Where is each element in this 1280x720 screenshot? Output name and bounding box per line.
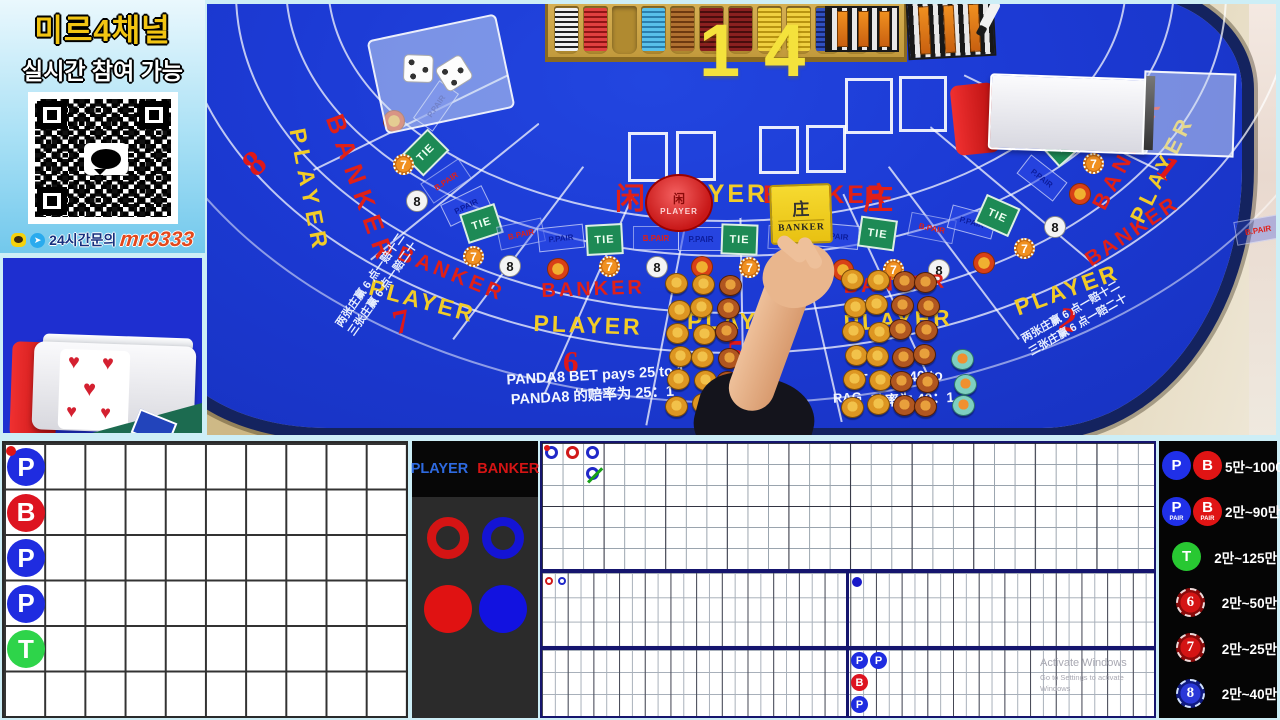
bet-box-tie: TIE: [857, 216, 898, 252]
legend-symbols: [412, 497, 538, 633]
limit-icon-p: P: [1162, 451, 1191, 480]
chip: [951, 349, 974, 370]
lucky-chip-icon: [973, 252, 995, 274]
chip: [843, 369, 866, 390]
watermark-line1: Activate Windows: [1040, 655, 1154, 672]
limit-range: 2만~90만: [1225, 501, 1280, 521]
bead-B: B: [7, 494, 45, 532]
chip: [842, 321, 865, 342]
limit-icons: 6: [1162, 588, 1219, 617]
contact-label: 24시간문의: [49, 230, 116, 250]
eight-chip-icon: 8: [499, 255, 521, 277]
card-spot: [806, 125, 846, 173]
chip-stack: [555, 8, 578, 51]
chip: [717, 298, 740, 319]
limit-range: 2만~50만: [1222, 592, 1277, 612]
table-video: P.PAIRTIEB.PAIRP.PAIRTIEB.PAIRP.PAIRTIEB…: [207, 4, 1276, 435]
bead-plate-grid: PBPPT: [4, 443, 406, 716]
derived-road-upper: [542, 573, 1154, 646]
roads-panel: PPBP Activate Windows Go to Settings to …: [540, 441, 1156, 718]
chip-tray-slot: [554, 6, 579, 54]
chip: [841, 397, 864, 418]
dealing-shoe-body: [988, 73, 1151, 155]
big-road-blue: [586, 446, 599, 459]
banker-dot-blue-icon: [479, 585, 527, 633]
dealing-shoe-tail: [1142, 70, 1237, 157]
chip: [665, 396, 688, 417]
big-road-blue: [545, 446, 558, 459]
player-arc-label: PLAYER: [533, 310, 643, 341]
limit-row: 72만~25만: [1159, 625, 1277, 671]
chip: [841, 269, 864, 290]
chip: [893, 271, 916, 292]
limit-icon-b: B: [1193, 451, 1222, 480]
derived-road-ring: [545, 577, 553, 585]
mini-bead-P: P: [851, 652, 868, 669]
chip: [715, 321, 738, 342]
chip: [665, 273, 688, 294]
chip: [890, 371, 913, 392]
player-cn-label: 闲: [615, 174, 645, 218]
promo-panel: 미르4채널 실시간 참여 가능 ➤ 24시간문의 mr9333: [0, 0, 205, 253]
legend-banker-label: BANKER: [477, 461, 539, 477]
banker-arc-label: BANKER: [541, 276, 645, 303]
chip: [867, 270, 890, 291]
qr-finder-icon: [139, 101, 169, 129]
bet-box-tie: TIE: [585, 223, 624, 256]
shoe-closeup-inset: ♥ ♥ ♥ ♥ ♥: [3, 258, 202, 433]
limit-icon-p: PPAIR: [1162, 497, 1191, 526]
limit-icons: 7: [1162, 633, 1219, 662]
chip: [669, 346, 692, 367]
channel-subtitle: 실시간 참여 가능: [0, 52, 205, 86]
road-divider: [846, 650, 849, 716]
limit-row: T2만~125만: [1159, 534, 1277, 580]
chip: [916, 372, 939, 393]
chip-stack: [642, 8, 665, 51]
legend-player-label: PLAYER: [411, 461, 468, 477]
seven-chip-icon: 7: [393, 154, 414, 175]
chip: [691, 347, 714, 368]
chip: [668, 300, 691, 321]
limit-icon-t: T: [1172, 542, 1201, 571]
bead-P: P: [7, 448, 45, 486]
chip: [917, 296, 940, 317]
chip-stack: [584, 8, 607, 51]
chip: [719, 275, 742, 296]
limit-icon-8: 8: [1176, 679, 1205, 708]
chip-tray-slot: [641, 6, 666, 54]
stream-stage: 미르4채널 실시간 참여 가능 ➤ 24시간문의 mr9333 ♥ ♥ ♥ ♥ …: [0, 0, 1280, 720]
chip: [867, 394, 890, 415]
seven-chip-icon: 7: [599, 256, 620, 277]
derived-road-dot: [852, 577, 862, 587]
big-road: [542, 443, 1154, 569]
chip: [954, 374, 977, 395]
seven-chip-icon: 7: [463, 246, 484, 267]
chip: [692, 274, 715, 295]
legend-panel: PLAYER BANKER: [412, 441, 538, 718]
kakao-icon: [11, 233, 26, 247]
chip-stack: [671, 8, 694, 51]
card-spot: [759, 126, 799, 174]
card-spot: [845, 78, 893, 134]
player-ring-red-icon: [427, 517, 469, 559]
banker-cn-label: 庄: [863, 174, 893, 218]
seven-chip-icon: 7: [739, 257, 760, 278]
chip: [914, 396, 937, 417]
road-divider: [846, 573, 849, 646]
chip: [952, 395, 975, 416]
pair-dot-icon: [544, 445, 550, 451]
bead-plate: PBPPT: [2, 441, 408, 718]
chip: [892, 347, 915, 368]
chip: [866, 346, 889, 367]
chip: [913, 344, 936, 365]
chip: [889, 319, 912, 340]
channel-title: 미르4채널: [0, 5, 205, 50]
chip: [845, 345, 868, 366]
card-spot: [899, 76, 947, 132]
chip: [865, 294, 888, 315]
chip: [844, 297, 867, 318]
derived-road-ring: [558, 577, 566, 585]
eight-chip-icon: 8: [1044, 216, 1066, 238]
chip: [666, 323, 689, 344]
limit-row: PPAIRBPAIR2만~90만: [1159, 489, 1277, 535]
limit-row: 62만~50만: [1159, 580, 1277, 626]
seven-chip-icon: 7: [1014, 238, 1035, 259]
telegram-icon: ➤: [30, 233, 45, 248]
banker-ring-blue-icon: [482, 517, 524, 559]
banker-marker-cn: 庄: [792, 195, 810, 221]
bet-limits-panel: PB5만~1000만PPAIRBPAIR2만~90만T2만~125만62만~50…: [1159, 441, 1277, 718]
tie-slash-icon: [587, 467, 603, 483]
bead-P: P: [7, 585, 45, 623]
limit-icons: 8: [1162, 679, 1219, 708]
chip: [693, 324, 716, 345]
os-watermark: Activate Windows Go to Settings to activ…: [1040, 655, 1154, 694]
banker-marker-label: BANKER: [778, 219, 825, 234]
lucky-chip-icon: [547, 258, 569, 280]
chip: [915, 320, 938, 341]
mini-bead-P: P: [851, 696, 868, 713]
big-road-red: [566, 446, 579, 459]
shoe-counter: 14: [699, 8, 829, 93]
chat-bubble-icon: [84, 143, 128, 175]
chip-stack: [613, 8, 636, 51]
limit-icon-b: BPAIR: [1193, 497, 1222, 526]
bet-box-pp: P.PAIR: [537, 224, 585, 253]
chip: [893, 395, 916, 416]
limit-icon-7: 7: [1176, 633, 1205, 662]
player-win-marker: 闲 PLAYER: [645, 174, 713, 232]
chip: [914, 272, 937, 293]
bead-T: T: [7, 630, 45, 668]
bead-P: P: [7, 539, 45, 577]
chip-tray-slot: [612, 6, 637, 54]
limit-range: 2만~40만: [1222, 683, 1277, 703]
limit-row: 82만~40만: [1159, 671, 1277, 717]
player-dot-red-icon: [424, 585, 472, 633]
plaque-rack: [825, 6, 899, 52]
limit-range: 5만~1000만: [1225, 456, 1280, 476]
chip: [868, 322, 891, 343]
dolly-label: PLAYER: [660, 207, 698, 216]
chip: [690, 297, 713, 318]
banker-marker: 庄 BANKER: [769, 183, 833, 245]
bet-box-tie: TIE: [720, 223, 758, 255]
limit-row: PB5만~1000만: [1159, 443, 1277, 489]
big-road-blue: [586, 467, 599, 480]
qr-code: [28, 92, 178, 224]
chip-tray-slot: [583, 6, 608, 54]
chip-tray-slot: [670, 6, 695, 54]
eight-chip-icon: 8: [646, 256, 668, 278]
limit-icons: PB: [1162, 451, 1222, 480]
qr-finder-icon: [37, 187, 67, 215]
chip: [667, 369, 690, 390]
limit-icons: PPAIRBPAIR: [1162, 497, 1222, 526]
legend-header: PLAYER BANKER: [412, 441, 538, 497]
seven-chip-icon: 7: [1083, 153, 1104, 174]
contact-id: mr9333: [119, 228, 195, 252]
mini-bead-P: P: [870, 652, 887, 669]
pair-dot-icon: [6, 446, 16, 456]
contact-line: ➤ 24시간문의 mr9333: [0, 228, 205, 252]
chip: [869, 370, 892, 391]
limit-range: 2만~25만: [1222, 638, 1277, 658]
limit-range: 2만~125만: [1214, 547, 1277, 567]
limit-icon-6: 6: [1176, 588, 1205, 617]
mini-bead-B: B: [851, 674, 868, 691]
qr-finder-icon: [37, 101, 67, 129]
exposed-card: ♥ ♥ ♥ ♥ ♥: [58, 349, 131, 431]
eight-chip-icon: 8: [406, 190, 428, 212]
watermark-line2: Go to Settings to activate Windows: [1040, 672, 1154, 695]
chip: [891, 295, 914, 316]
dolly-cn: 闲: [673, 190, 685, 207]
limit-icons: T: [1162, 542, 1211, 571]
